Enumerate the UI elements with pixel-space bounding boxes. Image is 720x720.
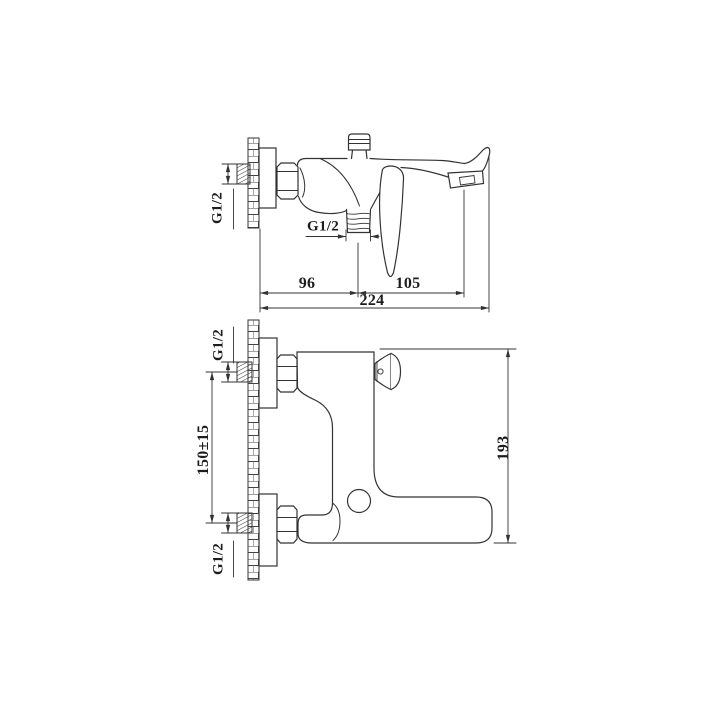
hex-nut-front-bottom [277,506,297,543]
hex-nut-side [277,163,298,199]
side-view [222,134,490,312]
diverter-knob-side [349,134,371,159]
wall-flange-side [259,148,276,208]
label-outlet-thread-side: G1/2 [307,220,339,235]
label-inlet-thread-side: G1/2 [211,192,226,224]
label-dim-105: 105 [396,276,421,292]
wall-flange-front-bottom [259,494,277,566]
wall-flange-front-top [259,338,277,408]
aerator-circle-front [348,490,371,513]
label-inlet-thread-front-bottom: G1/2 [212,543,227,575]
technical-drawing: G1/2 G1/2 96 105 224 G1/2 150±15 G1/2 19… [0,0,720,720]
label-dim-193: 193 [496,436,512,461]
inlet-nipple-side [237,164,250,184]
front-view [206,320,516,580]
wall-section-front [248,320,259,580]
label-dim-150: 150±15 [196,425,212,476]
drawing-geometry [0,0,720,720]
shower-outlet-side [347,210,371,233]
aerator-side [448,171,484,188]
hex-nut-front-top [277,355,297,392]
handle-knob-front [375,354,401,390]
label-dim-224: 224 [360,293,385,309]
lever-handle-side [380,166,404,277]
label-dim-96: 96 [299,276,316,292]
label-inlet-thread-front-top: G1/2 [212,329,227,361]
